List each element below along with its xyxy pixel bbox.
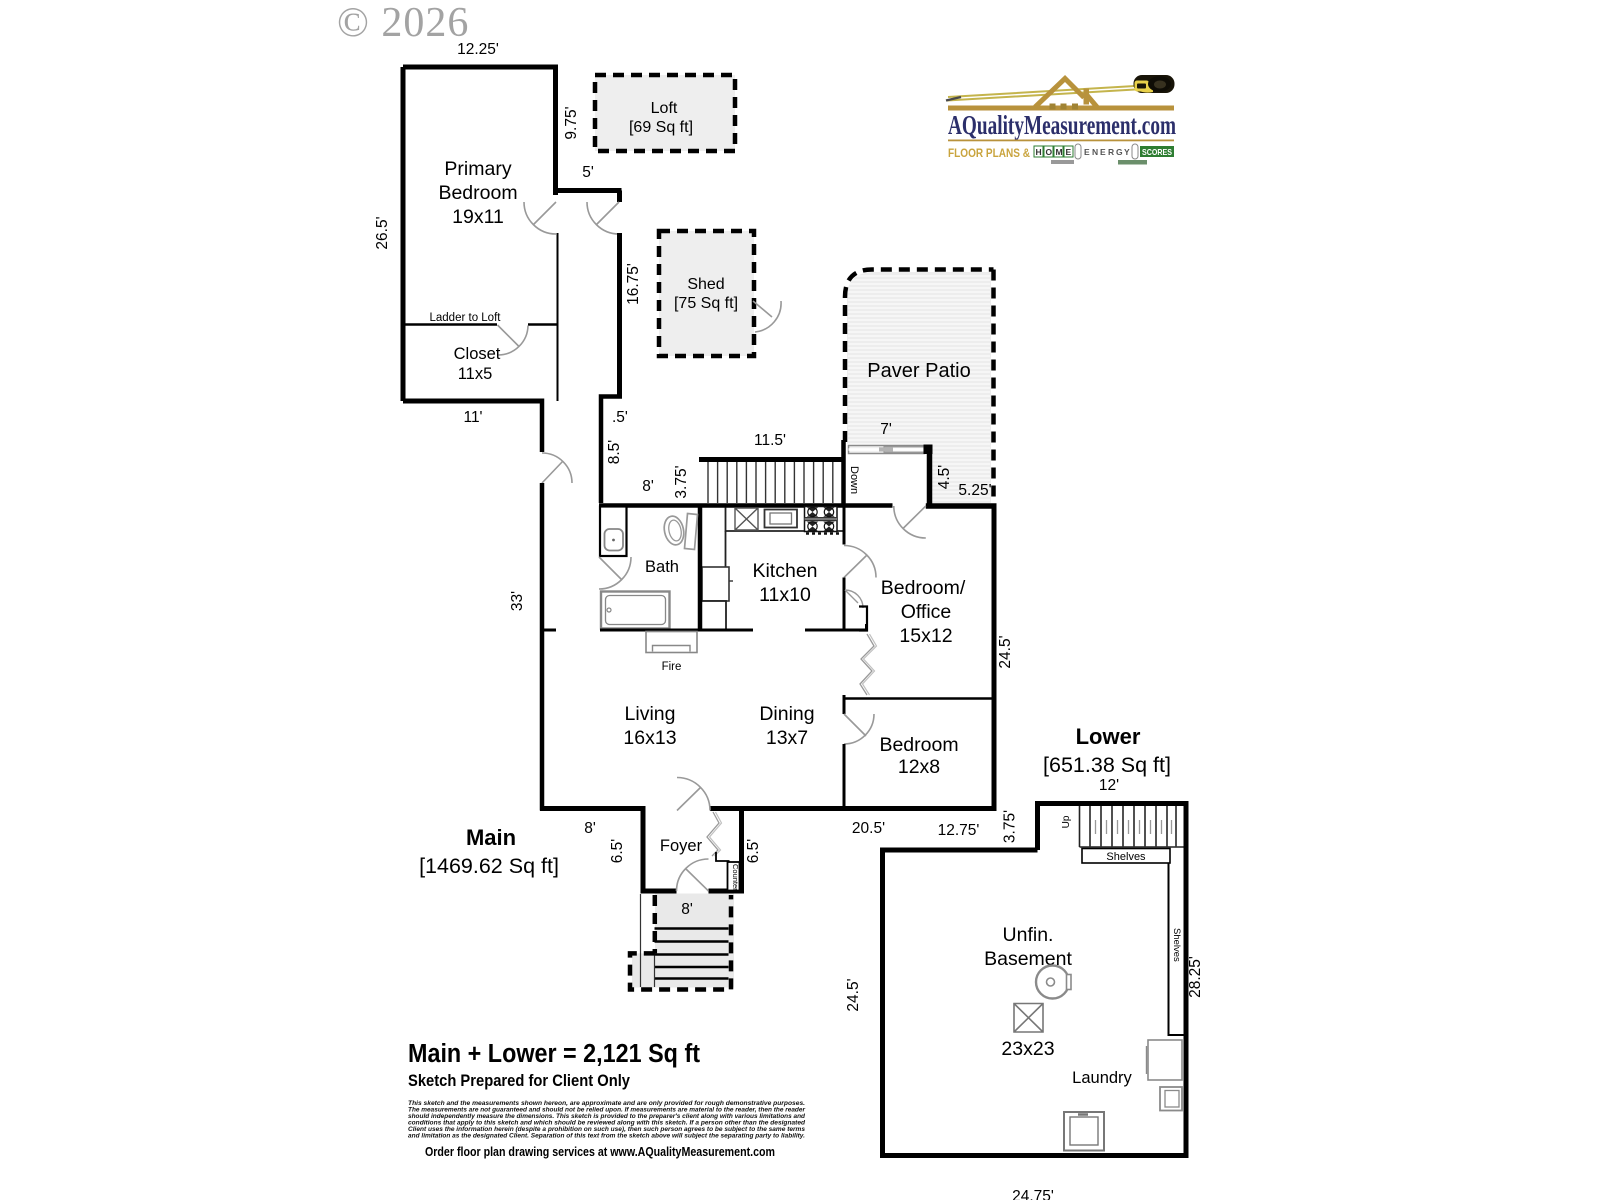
svg-text:5.25': 5.25'	[958, 482, 991, 499]
svg-text:15x12: 15x12	[899, 625, 952, 647]
svg-text:23x23: 23x23	[1001, 1038, 1054, 1060]
svg-text:FLOOR PLANS &: FLOOR PLANS &	[948, 146, 1030, 160]
svg-text:Paver Patio: Paver Patio	[867, 360, 970, 382]
svg-text:3.75': 3.75'	[1002, 810, 1019, 843]
svg-text:8': 8'	[642, 478, 654, 495]
svg-text:24.75': 24.75'	[1012, 1188, 1054, 1200]
svg-text:G: G	[1116, 147, 1123, 157]
svg-text:7': 7'	[880, 421, 892, 438]
svg-text:SCORES: SCORES	[1142, 147, 1172, 157]
svg-text:Shed: Shed	[687, 276, 724, 293]
svg-text:Up: Up	[1061, 815, 1072, 828]
svg-text:12x8: 12x8	[898, 756, 940, 778]
svg-text:Office: Office	[901, 601, 952, 623]
svg-text:N: N	[1092, 147, 1098, 157]
svg-text:Sketch Prepared for Client Onl: Sketch Prepared for Client Only	[408, 1071, 630, 1090]
svg-text:E: E	[1084, 147, 1090, 157]
svg-text:Shelves: Shelves	[1106, 851, 1146, 863]
svg-text:Fire: Fire	[662, 661, 682, 673]
svg-text:Closet: Closet	[454, 345, 501, 363]
svg-text:8': 8'	[681, 901, 693, 918]
svg-text:and limitation as the designat: and limitation as the designated Client.…	[408, 1133, 805, 1140]
svg-text:11': 11'	[463, 409, 482, 426]
svg-text:20.5': 20.5'	[852, 820, 885, 837]
svg-text:28.25': 28.25'	[1187, 956, 1204, 998]
svg-text:Main: Main	[466, 825, 516, 850]
svg-text:Laundry: Laundry	[1072, 1069, 1132, 1087]
svg-text:8.5': 8.5'	[606, 440, 623, 465]
svg-text:Primary: Primary	[444, 158, 511, 180]
svg-text:11.5': 11.5'	[754, 432, 786, 449]
svg-text:© 2026: © 2026	[337, 0, 469, 46]
svg-text:.5': .5'	[612, 409, 628, 426]
svg-text:Order floor plan drawing servi: Order floor plan drawing services at www…	[425, 1144, 775, 1159]
svg-text:5': 5'	[582, 164, 594, 181]
svg-text:Bath: Bath	[645, 558, 679, 576]
svg-text:E: E	[1066, 147, 1072, 157]
svg-text:Bedroom: Bedroom	[438, 182, 517, 204]
svg-text:19x11: 19x11	[452, 206, 504, 228]
svg-text:Counter: Counter	[731, 864, 740, 891]
svg-text:8': 8'	[584, 820, 596, 837]
svg-text:[69 Sq ft]: [69 Sq ft]	[629, 119, 693, 136]
svg-text:O: O	[1046, 147, 1053, 157]
svg-text:Foyer: Foyer	[660, 837, 703, 855]
svg-text:Bedroom/: Bedroom/	[881, 577, 966, 599]
svg-text:Y: Y	[1124, 147, 1130, 157]
svg-text:24.5': 24.5'	[845, 978, 862, 1011]
svg-text:12.75': 12.75'	[938, 822, 980, 839]
svg-text:11x5: 11x5	[458, 365, 493, 383]
svg-text:4.5': 4.5'	[936, 465, 953, 490]
svg-text:26.5': 26.5'	[374, 216, 391, 249]
svg-text:3.75': 3.75'	[673, 465, 690, 498]
svg-text:6.5': 6.5'	[609, 839, 626, 864]
svg-text:9.75': 9.75'	[563, 106, 580, 139]
svg-text:Main + Lower = 2,121 Sq ft: Main + Lower = 2,121 Sq ft	[408, 1040, 700, 1068]
svg-text:Unfin.: Unfin.	[1003, 924, 1054, 946]
svg-text:Kitchen: Kitchen	[752, 560, 817, 582]
svg-text:H: H	[1036, 147, 1042, 157]
svg-text:6.5': 6.5'	[745, 839, 762, 864]
svg-text:[75 Sq ft]: [75 Sq ft]	[674, 295, 738, 312]
svg-text:16x13: 16x13	[623, 727, 676, 749]
svg-text:13x7: 13x7	[766, 727, 808, 749]
svg-text:R: R	[1108, 147, 1114, 157]
svg-text:12': 12'	[1099, 777, 1119, 794]
svg-text:Loft: Loft	[651, 100, 678, 117]
svg-text:Living: Living	[625, 703, 676, 725]
svg-text:12.25': 12.25'	[457, 41, 499, 58]
svg-text:AQualityMeasurement.com: AQualityMeasurement.com	[948, 110, 1176, 140]
svg-text:33': 33'	[509, 591, 526, 611]
svg-text:Down: Down	[848, 466, 860, 494]
svg-text:24.5': 24.5'	[997, 635, 1014, 668]
svg-text:11x10: 11x10	[759, 584, 811, 606]
svg-text:M: M	[1056, 147, 1063, 157]
svg-text:Lower: Lower	[1076, 724, 1141, 749]
svg-text:Dining: Dining	[759, 703, 814, 725]
svg-text:Shelves: Shelves	[1171, 928, 1182, 962]
svg-text:Bedroom: Bedroom	[879, 734, 958, 756]
svg-text:[1469.62 Sq ft]: [1469.62 Sq ft]	[419, 854, 559, 878]
svg-text:[651.38 Sq ft]: [651.38 Sq ft]	[1043, 753, 1171, 777]
svg-text:16.75': 16.75'	[625, 263, 642, 305]
svg-text:E: E	[1100, 147, 1106, 157]
svg-text:Ladder to Loft: Ladder to Loft	[430, 312, 502, 324]
